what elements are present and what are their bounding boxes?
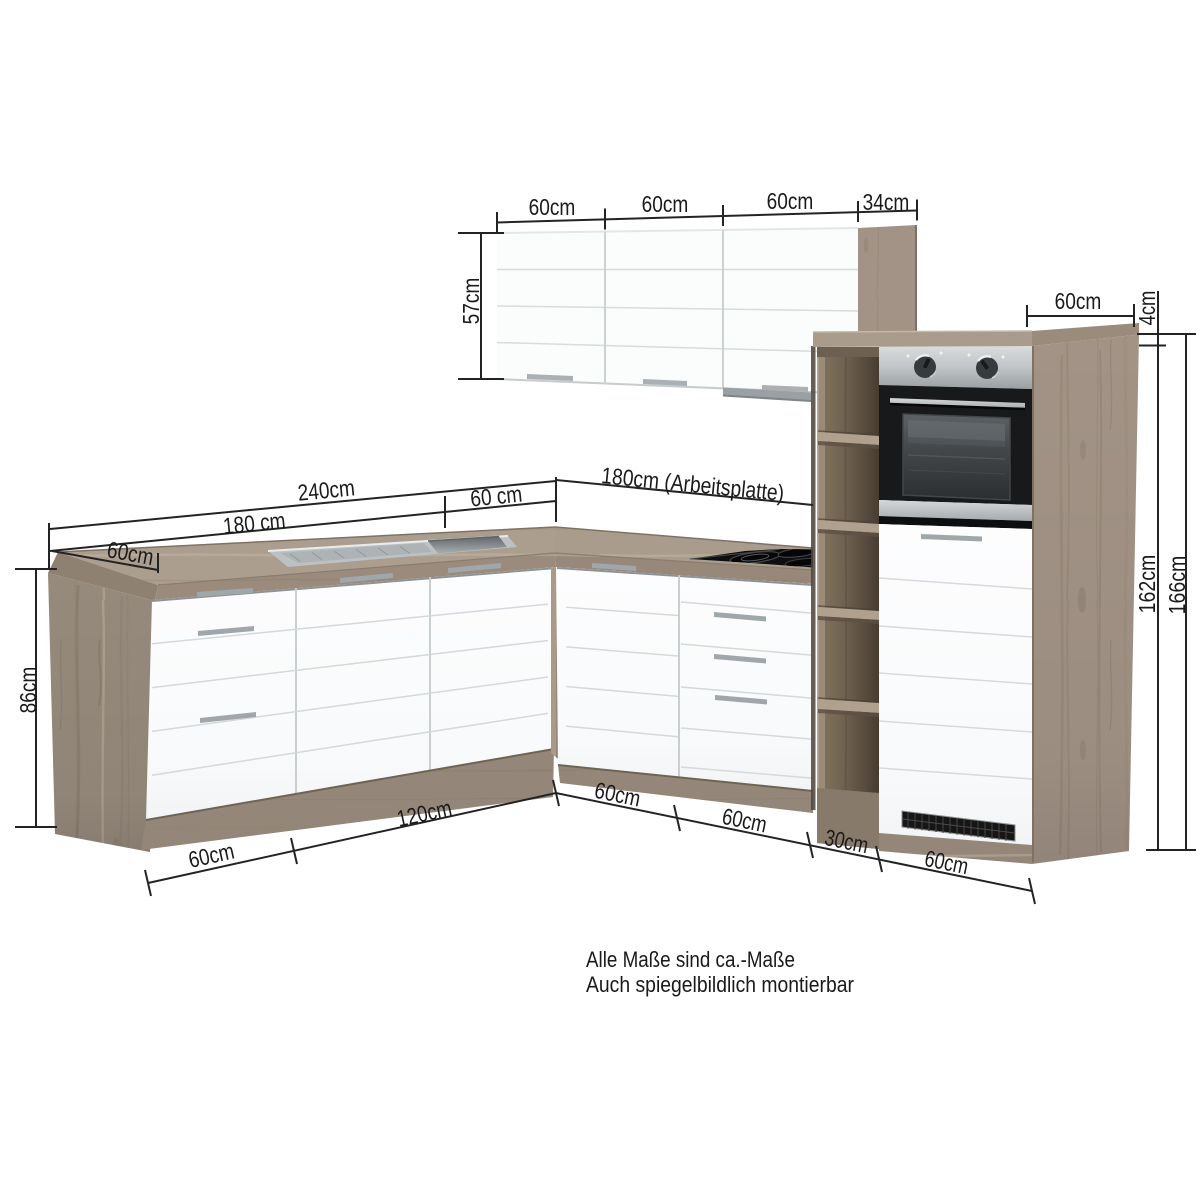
svg-text:166cm: 166cm xyxy=(1165,556,1191,615)
svg-text:34cm: 34cm xyxy=(863,190,910,215)
svg-text:162cm: 162cm xyxy=(1135,555,1161,614)
svg-text:Alle Maße sind ca.-Maße: Alle Maße sind ca.-Maße xyxy=(586,948,795,973)
svg-text:57cm: 57cm xyxy=(459,278,484,325)
svg-text:60cm: 60cm xyxy=(1055,289,1102,314)
svg-text:4cm: 4cm xyxy=(1135,291,1160,326)
svg-text:60cm: 60cm xyxy=(642,192,689,217)
svg-text:Auch spiegelbildlich montierba: Auch spiegelbildlich montierbar xyxy=(586,973,854,997)
svg-text:86cm: 86cm xyxy=(16,667,41,714)
svg-text:60cm: 60cm xyxy=(529,195,576,220)
svg-text:60cm: 60cm xyxy=(767,189,814,214)
svg-text:60 cm: 60 cm xyxy=(469,482,523,512)
